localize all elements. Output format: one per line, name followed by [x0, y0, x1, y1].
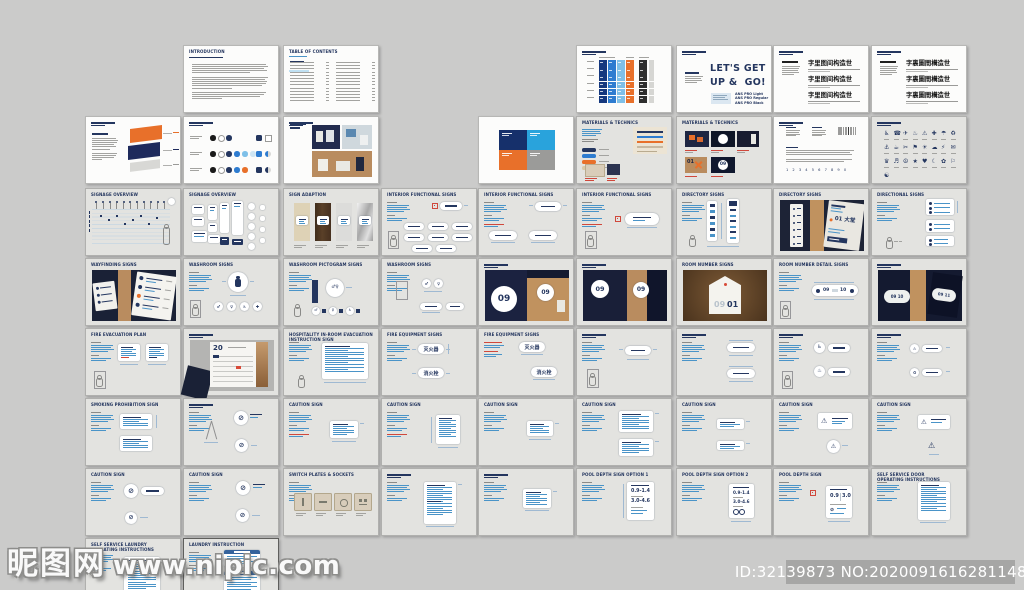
sign-circle [248, 213, 255, 220]
pictogram-icon: ☾ [932, 158, 937, 165]
page-thumbnail-r6c9: CAUTION SIGN⚠⚠ [871, 398, 967, 466]
page-thumbnail-r7c4 [381, 468, 477, 536]
page-thumbnail-r6c3: CAUTION SIGN [283, 398, 379, 466]
sign-pill [428, 223, 448, 230]
sign-card [220, 203, 229, 233]
page-thumbnail-r5c4: FIRE EQUIPMENT SIGNS灭火器消火栓 [381, 328, 477, 396]
sign-pill [828, 344, 850, 352]
sign-card [208, 223, 217, 232]
page-thumbnail-r3c7: DIRECTORY SIGNS [676, 188, 772, 256]
sign-pill [489, 231, 517, 240]
pictogram-icon: ⚐ [951, 158, 956, 165]
sign-card [120, 436, 152, 451]
page-thumbnail-r1c8: 字里图间构造世字里图间构造世字里图间构造世 [773, 45, 869, 113]
person-figure [96, 375, 102, 386]
sign-circle: ♻ [910, 368, 919, 377]
pictogram-icon: ♿ [884, 130, 889, 137]
sign-pill [529, 231, 557, 240]
sign-card [727, 199, 739, 243]
pictogram-icon: ☎ [894, 130, 901, 137]
sign-pill [625, 346, 651, 355]
page-thumbnail-r3c4: INTERIOR FUNCTIONAL SIGNS [381, 188, 477, 256]
sign-card [359, 216, 371, 225]
sign-card [317, 216, 329, 225]
sign-card [192, 231, 207, 242]
page-thumbnail-r6c2: ⊘⊘ [183, 398, 279, 466]
page-thumbnail-r5c1: FIRE EVACUATION PLAN [85, 328, 181, 396]
sign-card [436, 415, 460, 444]
sign-card [260, 205, 265, 210]
page-thumbnail-r4c9: 09 1009 11 [871, 258, 967, 326]
sign-card [918, 482, 950, 520]
barcode [838, 127, 856, 135]
pictogram-icon: ♬ [894, 158, 899, 165]
page-thumbnail-r5c7 [676, 328, 772, 396]
sign-card [146, 344, 168, 361]
pictogram-icon: ✿ [941, 158, 946, 165]
page-thumbnail-r2c1 [85, 116, 181, 184]
switch-plate [314, 493, 332, 511]
sign-card [208, 205, 217, 220]
sign-circle: ⚠ [910, 344, 919, 353]
sign-circle: ♀ [329, 307, 337, 315]
page-thumbnail-r4c4: WASHROOM SIGNS♂♀ [381, 258, 477, 326]
page-thumbnail-r5c3: HOSPITALITY IN-ROOM EVACUATION INSTRUCTI… [283, 328, 379, 396]
pictogram-icon: ⚓ [884, 144, 889, 151]
page-thumbnail-r7c1: CAUTION SIGN⊘⊘ [85, 468, 181, 536]
sign-card [322, 343, 368, 379]
page-thumbnail-r6c6: CAUTION SIGN [576, 398, 672, 466]
pictogram-icon: ✂ [903, 144, 908, 151]
sign-card [523, 489, 551, 508]
sign-circle [248, 223, 255, 230]
sign-card: 0.9-1.43.0-4.6 [729, 484, 754, 518]
sign-circle: ♂ [214, 302, 223, 311]
logo-layer-navy [128, 142, 160, 160]
room-tag: 0901 [709, 276, 741, 314]
person-figure [163, 224, 169, 244]
sign-card [330, 421, 358, 438]
directory-panel: 20 [210, 342, 256, 387]
page-thumbnail-r4c3: WASHROOM PICTOGRAM SIGNS♂♀♂♀♿ [283, 258, 379, 326]
photo-block: 01 大堂 [780, 200, 864, 251]
page-thumbnail-r7c2: CAUTION SIGN⊘⊘ [183, 468, 279, 536]
sign-circle: ⊘ [235, 439, 248, 452]
page-thumbnail-r7c5 [478, 468, 574, 536]
door-outline [396, 281, 408, 300]
pictogram-icon: ☕ [894, 144, 899, 151]
sign-pill [404, 234, 424, 241]
sign-circle: 09 [537, 284, 554, 301]
sign-card [260, 216, 265, 221]
sign-card: ⚠ [818, 413, 852, 429]
sign-circle [248, 203, 255, 210]
color-block [499, 150, 527, 170]
page-thumbnail-r7c7: POOL DEPTH SIGN OPTION 20.9-1.43.0-4.6 [676, 468, 772, 536]
material-panel [633, 127, 667, 154]
sign-circle [168, 198, 175, 205]
page-thumbnail-r7c6: POOL DEPTH SIGN OPTION 10.9-1.43.0-4.6 [576, 468, 672, 536]
photo-block: 01 [685, 157, 707, 173]
sign-card [192, 205, 204, 214]
sign-pill [535, 202, 561, 211]
switch-plate [334, 493, 352, 511]
page-thumbnail-r1c3: TABLE OF CONTENTS [283, 45, 379, 113]
page-thumbnail-r4c2: WASHROOM SIGNS♂♀♿✚ [183, 258, 279, 326]
logo-layer-orange [130, 125, 162, 143]
photo-block: 0909 [485, 270, 569, 321]
sign-circle: ✚ [253, 302, 262, 311]
sign-pill [446, 303, 464, 310]
page-thumbnail-r2c3 [283, 116, 379, 184]
photo-block: 09 [711, 157, 735, 173]
sign-circle: ♂♀ [326, 279, 344, 297]
sign-card [619, 439, 653, 456]
sign-circle [718, 134, 728, 144]
page-thumbnail-r6c7: CAUTION SIGN [676, 398, 772, 466]
watermark: 昵图网 www.nipic.com [7, 549, 340, 580]
sign-pill: 消火栓 [531, 367, 557, 377]
sign-card [424, 482, 456, 524]
sign-pill [452, 234, 472, 241]
sign-circle: ♂ [422, 279, 431, 288]
page-thumbnail-r3c2: SIGNAGE OVERVIEW [183, 188, 279, 256]
sign-card [926, 199, 954, 215]
person-figure [689, 235, 695, 246]
pictogram-icon: ☯ [884, 172, 889, 179]
pictogram-icon: ⚡ [941, 144, 945, 151]
pictogram-icon: ✉ [951, 144, 956, 151]
sign-card [120, 414, 152, 429]
sign-pill [440, 202, 462, 210]
page-thumbnail-r7c3: SWITCH PLATES & SOCKETS [283, 468, 379, 536]
pictogram-icon: ✚ [932, 130, 937, 137]
photo-block [737, 131, 759, 147]
sign-pill [828, 368, 850, 376]
page-thumbnail-r6c5: CAUTION SIGN [478, 398, 574, 466]
page-thumbnail-r2c8: 1 2 3 4 5 6 7 8 9 0 [773, 116, 869, 184]
page-thumbnail-r5c9: ⚠♻ [871, 328, 967, 396]
pictogram-icon: ☀ [922, 144, 927, 151]
page-thumbnail-r1c7: LET'S GET UP & GO!ANS PRO LightANS PRO R… [676, 45, 772, 113]
sign-card: 0.9-1.43.0-4.6 [627, 482, 654, 520]
page-thumbnail-r4c1: WAYFINDING SIGNS [85, 258, 181, 326]
red-marker [615, 216, 621, 222]
switch-plate [294, 493, 312, 511]
pictogram-icon: ☮ [903, 158, 908, 165]
sign-card [619, 411, 653, 432]
pictogram-icon: ♥ [922, 158, 927, 165]
page-thumbnail-r5c5: FIRE EQUIPMENT SIGNS灭火器消火栓 [478, 328, 574, 396]
page-thumbnail-r3c3: SIGN ADAPTION [283, 188, 379, 256]
sign-circle: ♿ [346, 307, 354, 315]
watermark-logo: 昵图网 [7, 549, 106, 580]
pictogram-icon: ⚠ [922, 130, 927, 137]
sign-circle: ♿ [240, 302, 249, 311]
sign-circle [248, 243, 255, 250]
person-figure [298, 375, 304, 387]
page-thumbnail-r7c8: POOL DEPTH SIGN0.93.0⊘ [773, 468, 869, 536]
sign-circle: ⊘ [236, 509, 249, 522]
sign-card [717, 441, 744, 450]
sign-circle [248, 233, 255, 240]
sign-pill [436, 245, 456, 252]
sign-plaque [131, 271, 177, 320]
page-thumbnail-r4c7: ROOM NUMBER SIGNS0901 [676, 258, 772, 326]
sign-pill [404, 223, 424, 230]
sign-pill [625, 213, 659, 225]
page-thumbnail-r1c2: INTRODUCTION [183, 45, 279, 113]
sign-pill [141, 487, 164, 495]
sign-card [338, 216, 350, 225]
sign-plaque [92, 281, 117, 311]
page-thumbnail-r1c9: 字裏圖間構造世字裏圖間構造世字裏圖間構造世 [871, 45, 967, 113]
page-grid: INTRODUCTIONTABLE OF CONTENTSLET'S GET U… [0, 0, 1024, 590]
sign-card [260, 227, 265, 232]
sign-pill [922, 345, 942, 352]
sign-circle: ⊘ [236, 481, 250, 495]
photo-block [685, 131, 709, 147]
person-figure [587, 235, 593, 246]
color-block [527, 150, 555, 170]
sign-circle: ⊘ [234, 411, 248, 425]
page-thumbnail-r1c6 [576, 45, 672, 113]
sign-card [926, 220, 954, 232]
page-thumbnail-r3c5: INTERIOR FUNCTIONAL SIGNS [478, 188, 574, 256]
photo-block [312, 151, 372, 177]
page-thumbnail-r4c8: ROOM NUMBER DETAIL SIGNS0910 [773, 258, 869, 326]
sign-pill [452, 223, 472, 230]
pictogram-icon: ♛ [884, 158, 889, 165]
sign-circle: 09 [591, 280, 609, 298]
sign-card [296, 216, 308, 225]
sign-card: ⚠ [918, 415, 950, 429]
person-figure [192, 304, 198, 315]
sign-card [926, 236, 954, 246]
sign-card [118, 344, 140, 361]
sign-pill: 0910 [812, 285, 858, 296]
page-thumbnail-r5c6 [576, 328, 672, 396]
page-thumbnail-r3c1: SIGNAGE OVERVIEW [85, 188, 181, 256]
person-figure [589, 373, 595, 385]
sign-pill [727, 369, 755, 378]
sign-card [260, 238, 265, 243]
sign-card [192, 217, 204, 226]
photo-block [92, 270, 176, 321]
page-thumbnail-r4c5: 0909 [478, 258, 574, 326]
sign-circle: ⚠ [827, 440, 840, 453]
person-figure [390, 235, 396, 246]
sign-circle: ♀ [227, 302, 236, 311]
photo-block: 0909 [583, 270, 667, 321]
sign-card: 0.93.0⊘ [826, 486, 852, 518]
sign-circle: ♨ [814, 366, 825, 377]
sign-circle: ♂ [312, 307, 320, 315]
sign-pill [420, 303, 442, 310]
sign-pill [428, 234, 448, 241]
sign-card [208, 235, 220, 243]
person-figure [782, 305, 788, 316]
photo-block [711, 131, 735, 147]
sign-pill: 灭火器 [418, 344, 444, 354]
page-thumbnail-r2c5 [478, 116, 574, 184]
image-id-badge: ID:32139873 NO:20200916162811485000 [786, 560, 1015, 584]
sign-card [527, 421, 553, 436]
sign-circle: 09 [633, 282, 649, 298]
photo-block: 20 [190, 340, 274, 391]
sign-circle [228, 272, 248, 292]
page-thumbnail-r2c6: MATERIALS & TECHNICS [576, 116, 672, 184]
page-thumbnail-r7c9: SELF SERVICE DOOR OPERATING INSTRUCTIONS [871, 468, 967, 536]
page-thumbnail-r3c6: INTERIOR FUNCTIONAL SIGNS [576, 188, 672, 256]
photo-block [342, 125, 372, 149]
photo-block: 0901 [683, 270, 767, 321]
sign-card [707, 201, 717, 241]
page-thumbnail-r3c9: DIRECTIONAL SIGNS [871, 188, 967, 256]
red-marker [432, 203, 438, 209]
red-marker [810, 490, 816, 496]
switch-plate [354, 493, 372, 511]
sign-circle: ♀ [434, 279, 443, 288]
pictogram-icon: ♻ [951, 130, 956, 137]
pictogram-icon: ♨ [913, 130, 918, 137]
preview-canvas: INTRODUCTIONTABLE OF CONTENTSLET'S GET U… [0, 0, 1024, 590]
page-thumbnail-r6c8: CAUTION SIGN⚠⚠ [773, 398, 869, 466]
pictogram-icon: ☂ [941, 130, 946, 137]
sign-circle: 09 [491, 286, 517, 312]
sign-circle: 09 [718, 160, 728, 170]
page-thumbnail-r2c2 [183, 116, 279, 184]
person-figure [886, 237, 892, 248]
color-block [499, 130, 527, 150]
sign-card [717, 419, 744, 429]
sign-pill: 灭火器 [519, 342, 545, 352]
pictogram-icon: ✈ [903, 130, 908, 137]
sign-circle: ⊘ [125, 512, 137, 524]
sign-pill [412, 245, 432, 252]
watermark-url: www.nipic.com [113, 553, 340, 579]
photo-block [312, 125, 340, 149]
page-thumbnail-r2c7: MATERIALS & TECHNICS0109 [676, 116, 772, 184]
photo-block: 09 1009 11 [878, 270, 962, 321]
pictogram-icon: ★ [913, 158, 918, 165]
color-block [527, 130, 555, 150]
page-thumbnail-r4c6: 0909 [576, 258, 672, 326]
pictogram-icon: ☁ [932, 144, 938, 151]
page-thumbnail-r6c4: CAUTION SIGN [381, 398, 477, 466]
pictogram-icon: ⚑ [913, 144, 918, 151]
sign-card [232, 201, 243, 235]
sign-pill [922, 369, 942, 376]
sign-pill: 消火栓 [418, 368, 444, 378]
sign-pill [727, 343, 755, 352]
logo-layer-gray [130, 159, 160, 172]
person-figure [784, 375, 790, 386]
elevation-area [92, 209, 170, 247]
page-thumbnail-r6c1: SMOKING PROHIBITION SIGN [85, 398, 181, 466]
page-thumbnail-r5c2: 20 [183, 328, 279, 396]
page-thumbnail-r3c8: DIRECTORY SIGNS01 大堂 [773, 188, 869, 256]
page-thumbnail-r5c8: ♿♨ [773, 328, 869, 396]
room-oval: 09 10 [884, 290, 910, 303]
page-thumbnail-r2c9: ♿☎✈♨⚠✚☂♻⚓☕✂⚑☀☁⚡✉♛♬☮★♥☾✿⚐☯ [871, 116, 967, 184]
directory-panel: 01 大堂 [823, 200, 864, 251]
sign-circle: ♿ [814, 342, 825, 353]
sign-circle: ⊘ [124, 484, 138, 498]
person-figure [294, 304, 300, 316]
